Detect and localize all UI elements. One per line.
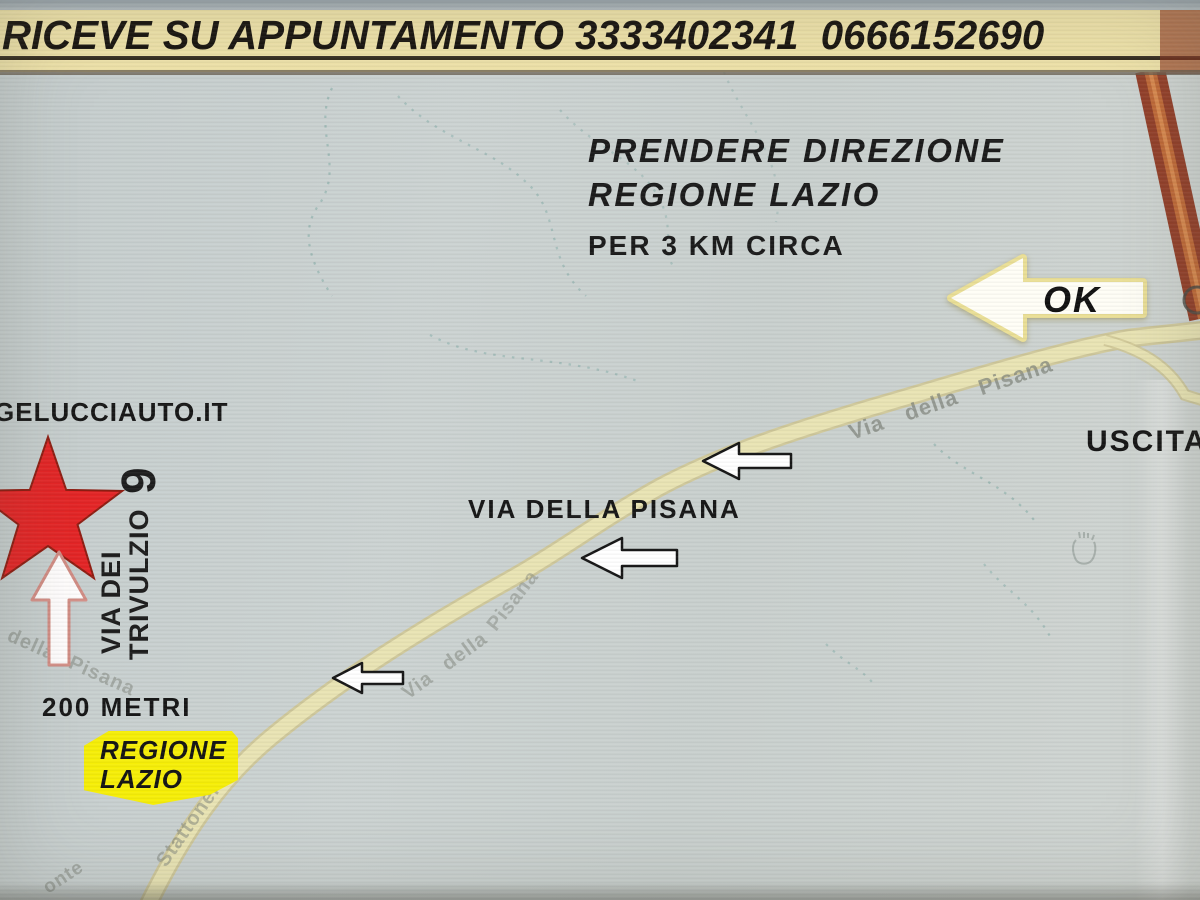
map-flyer: Via della Pisana della Pisana Via della …	[0, 0, 1200, 900]
street-name-label: VIA DELLA PISANA	[468, 494, 741, 525]
badge-line-1: REGIONE	[100, 736, 238, 765]
badge-line-2: LAZIO	[100, 765, 238, 794]
ok-arrow-icon: OK	[951, 258, 1143, 338]
photo-bottom-edge	[0, 882, 1200, 900]
street-vertical-line-2: TRIVULZIO	[124, 509, 155, 661]
directions-line-2: REGIONE LAZIO	[588, 176, 1005, 214]
directions-text: PRENDERE DIREZIONE REGIONE LAZIO PER 3 K…	[588, 132, 1005, 262]
directions-line-1: PRENDERE DIREZIONE	[588, 132, 1005, 170]
street-vertical-line-1: VIA DEI	[96, 550, 127, 654]
header-underline	[0, 56, 1200, 60]
hand-doodle-icon	[1073, 532, 1095, 564]
exit-label: USCITA	[1086, 425, 1200, 459]
highway-road	[1150, 70, 1200, 318]
photo-top-edge	[0, 0, 1200, 10]
header-map-divider	[0, 70, 1200, 75]
ok-arrow-label: OK	[1043, 279, 1102, 320]
main-road	[148, 330, 1200, 900]
street-number: 9	[112, 467, 167, 494]
highway-photo-corner	[1160, 0, 1200, 74]
directions-line-3: PER 3 KM CIRCA	[588, 230, 1005, 262]
website-label: GELUCCIAUTO.IT	[0, 397, 229, 428]
left-arrow-icon-2	[582, 538, 677, 578]
road-name-labels: Via della Pisana della Pisana Via della …	[4, 351, 1056, 898]
distance-label: 200 METRI	[42, 692, 192, 723]
header-title: RICEVE SU APPUNTAMENTO 3333402341 066615…	[2, 12, 1174, 59]
